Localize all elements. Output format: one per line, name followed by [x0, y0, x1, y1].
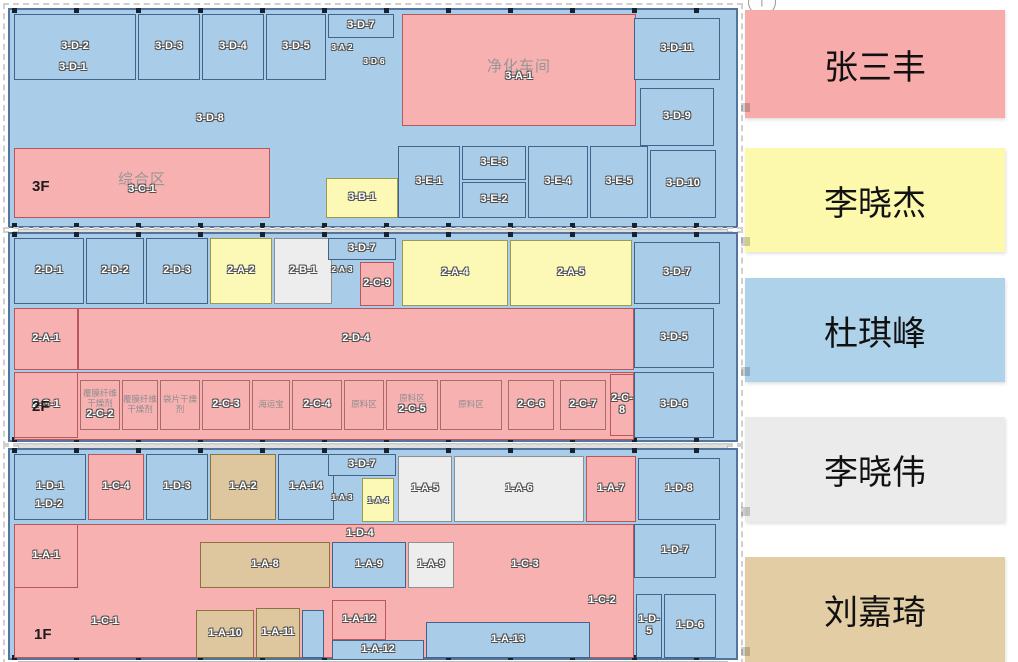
room-3-D-5: 3-D-5 [266, 14, 326, 80]
room-2-C-2: 覆膜纤维干燥剂2-C-2 [80, 380, 120, 430]
room-3-B-1: 3-B-1 [326, 178, 398, 218]
legend-name: 张三丰 [824, 40, 926, 89]
room-label: 2-A-3 [331, 265, 352, 274]
room-label: 1-A-2 [229, 481, 257, 493]
room-label: 2-D-1 [35, 265, 63, 277]
room-3-D-1: 3-D-1 [28, 60, 118, 76]
room-label: 3-D-6 [660, 399, 688, 411]
room-1-A-9: 1-A-9 [408, 542, 454, 588]
room-annotation: 原料区 [351, 400, 377, 410]
room-label: 3-A-1 [505, 71, 533, 83]
room-label: 2-D-3 [163, 265, 191, 277]
room-1-A-3: 1-A-3 [324, 490, 360, 504]
room-3-D-7: 3-D-7 [634, 242, 720, 304]
room-label: 1-D-6 [676, 620, 704, 632]
floor-label-1F: 1F [34, 626, 52, 643]
room-2-D-1: 2-D-1 [14, 238, 84, 304]
room-label: 2-C-9 [363, 278, 391, 290]
legend-item: 李晓杰 [745, 148, 1005, 252]
room-1-C-1: 1-C-1 [50, 612, 160, 632]
floor-plan-1F: 1-D-11-D-21-C-41-D-31-A-21-A-143-D-71-A-… [8, 448, 738, 660]
room-3-E-5: 3-E-5 [590, 146, 648, 218]
room-area [302, 610, 324, 658]
floor-label-2F: 2F [32, 398, 50, 415]
room-1-A-13: 1-A-13 [426, 622, 590, 658]
room-label: 1-A-13 [491, 634, 525, 646]
room-label: 1-A-9 [355, 559, 383, 571]
room-label: 2-A-5 [557, 267, 585, 279]
room-label: 3-D-7 [348, 243, 376, 255]
room-label: 1-D-5 [637, 614, 661, 637]
room-label: 3-D-5 [282, 41, 310, 53]
room-label: 3-D-10 [666, 178, 700, 190]
room-label: 1-D-3 [163, 481, 191, 493]
room-3-C-1: 综合区3-C-1 [14, 148, 270, 218]
room-label: 3-E-5 [606, 176, 633, 188]
room-1-A-2: 1-A-2 [210, 454, 276, 520]
room-1-C-4: 1-C-4 [88, 454, 144, 520]
room-annotation: 覆膜纤维干燥剂 [81, 389, 119, 409]
legend-item: 李晓伟 [745, 417, 1005, 522]
owner-legend: ↑ 张三丰李晓杰杜琪峰李晓伟刘嘉琦 [745, 0, 1008, 662]
room-label: 3-D-7 [663, 267, 691, 279]
room-3-E-3: 3-E-3 [462, 146, 526, 180]
room-label: 3-E-1 [416, 176, 443, 188]
room-1-A-6: 1-A-6 [454, 456, 584, 522]
room-2-C-9: 2-C-9 [360, 262, 394, 306]
room-label: 2-A-2 [227, 265, 255, 277]
room-3-E-1: 3-E-1 [398, 146, 460, 218]
floor-plan-2F: 2-D-12-D-22-D-32-A-22-B-13-D-72-A-32-C-9… [8, 232, 738, 442]
room-label: 1-A-14 [289, 481, 323, 493]
room-3-D-8: 3-D-8 [150, 110, 270, 128]
room-label: 1-A-7 [597, 483, 625, 495]
legend-name: 刘嘉琦 [824, 585, 926, 634]
room-label: 1-A-9 [417, 559, 445, 571]
room-2-C-5: 原料区2-C-5 [386, 380, 438, 430]
room-1-A-7: 1-A-7 [586, 456, 636, 522]
room-3-D-4: 3-D-4 [202, 14, 264, 80]
room-area: 覆膜纤维干燥剂 [122, 380, 158, 430]
room-label: 1-D-4 [346, 528, 374, 540]
room-label: 3-B-1 [348, 192, 376, 204]
room-1-A-12: 1-A-12 [332, 600, 386, 640]
room-label: 1-A-12 [342, 614, 376, 626]
room-area: 袋片干燥剂 [160, 380, 200, 430]
room-3-A-1: 净化车间3-A-1 [402, 14, 636, 126]
room-1-D-2: 1-D-2 [18, 496, 80, 514]
room-2-C-4: 2-C-4 [292, 380, 342, 430]
room-label: 2-D-2 [101, 265, 129, 277]
room-2-C-7: 2-C-7 [560, 380, 606, 430]
room-2-C-6: 2-C-6 [508, 380, 554, 430]
room-3-E-2: 3-E-2 [462, 182, 526, 218]
room-area: 海运宝 [252, 380, 290, 430]
column-row-decoration [12, 448, 734, 453]
room-label: 2-C-3 [212, 399, 240, 411]
room-label: 3-E-4 [545, 176, 572, 188]
legend-item: 杜琪峰 [745, 278, 1005, 382]
room-label: 2-C-7 [569, 399, 597, 411]
room-3-D-6: 3-D-6 [634, 372, 714, 438]
room-label: 1-A-4 [367, 496, 388, 505]
room-1-A-1: 1-A-1 [14, 524, 78, 588]
room-label: 2-B-1 [289, 265, 317, 277]
legend-item: 张三丰 [745, 10, 1005, 118]
room-2-A-2: 2-A-2 [210, 238, 272, 304]
room-1-D-8: 1-D-8 [638, 458, 720, 520]
room-label: 3-D-1 [59, 62, 87, 74]
room-2-D-3: 2-D-3 [146, 238, 208, 304]
room-label: 2-C-4 [303, 399, 331, 411]
room-label: 3-D-3 [155, 41, 183, 53]
room-1-D-4: 1-D-4 [310, 526, 410, 542]
floor-label-3F: 3F [32, 178, 50, 195]
room-label: 3-D-6 [363, 57, 384, 66]
room-3-D-6: 3-D-6 [354, 52, 394, 70]
room-label: 3-D-5 [660, 332, 688, 344]
room-1-A-11: 1-A-11 [256, 608, 300, 658]
room-area: 原料区 [344, 380, 384, 430]
room-1-A-8: 1-A-8 [200, 542, 330, 588]
room-2-A-3: 2-A-3 [324, 262, 360, 276]
room-label: 3-D-4 [219, 41, 247, 53]
room-label: 2-C-6 [517, 399, 545, 411]
room-label: 3-D-7 [347, 20, 375, 32]
room-3-D-9: 3-D-9 [640, 88, 714, 146]
room-label: 1-D-7 [661, 545, 689, 557]
room-label: 2-D-4 [342, 333, 370, 345]
legend-item: 刘嘉琦 [745, 557, 1005, 662]
room-label: 1-A-12 [361, 644, 395, 656]
floor-plan-3F: 净化车间3-A-1综合区3-C-13-D-23-D-13-D-33-D-43-D… [8, 8, 738, 228]
floor-plan-canvas: 净化车间3-A-1综合区3-C-13-D-23-D-13-D-33-D-43-D… [0, 0, 1018, 662]
room-label: 2-A-4 [441, 267, 469, 279]
room-label: 1-D-8 [665, 483, 693, 495]
room-1-A-10: 1-A-10 [196, 610, 254, 658]
room-label: 2-C-5 [398, 404, 426, 416]
room-1-C-2: 1-C-2 [572, 592, 632, 610]
room-1-A-5: 1-A-5 [398, 456, 452, 522]
room-label: 2-C-8 [611, 393, 633, 416]
legend-name: 李晓杰 [824, 176, 926, 225]
room-2-A-1: 2-A-1 [14, 308, 78, 370]
room-2-C-3: 2-C-3 [202, 380, 250, 430]
room-1-A-4: 1-A-4 [362, 478, 394, 522]
room-2-A-4: 2-A-4 [402, 240, 508, 306]
room-2-C-8: 2-C-8 [610, 374, 634, 436]
room-label: 1-A-10 [208, 628, 242, 640]
room-label: 3-C-1 [128, 184, 156, 196]
room-label: 2-A-1 [32, 333, 60, 345]
room-label: 3-D-8 [196, 113, 224, 125]
room-label: 1-D-1 [36, 481, 64, 493]
room-label: 1-D-2 [35, 499, 63, 511]
room-annotation: 海运宝 [258, 400, 284, 410]
room-2-A-5: 2-A-5 [510, 240, 632, 306]
room-1-D-6: 1-D-6 [664, 594, 716, 658]
room-3-D-7: 3-D-7 [328, 238, 396, 260]
room-annotation: 袋片干燥剂 [161, 395, 199, 415]
room-1-D-5: 1-D-5 [636, 594, 662, 658]
room-3-D-7: 3-D-7 [328, 454, 396, 476]
room-label: 1-A-6 [505, 483, 533, 495]
room-3-E-4: 3-E-4 [528, 146, 588, 218]
room-label: 2-C-2 [86, 409, 114, 421]
room-label: 3-A-2 [331, 43, 352, 52]
room-label: 3-D-2 [61, 41, 89, 53]
room-label: 1-C-2 [588, 595, 616, 607]
room-3-D-7: 3-D-7 [328, 14, 394, 38]
room-1-D-7: 1-D-7 [634, 524, 716, 578]
room-label: 1-A-1 [32, 550, 60, 562]
legend-name: 李晓伟 [824, 445, 926, 494]
room-3-D-3: 3-D-3 [138, 14, 200, 80]
room-3-D-10: 3-D-10 [650, 150, 716, 218]
room-label: 1-A-3 [331, 493, 352, 502]
legend-name: 杜琪峰 [824, 306, 926, 355]
room-1-C-3: 1-C-3 [470, 550, 580, 580]
room-2-D-4: 2-D-4 [78, 308, 634, 370]
room-1-D-3: 1-D-3 [146, 454, 208, 520]
column-row-decoration [12, 223, 734, 228]
column-row-decoration [12, 232, 734, 237]
room-label: 1-C-1 [91, 616, 119, 628]
room-label: 3-D-9 [663, 111, 691, 123]
column-row-decoration [12, 8, 734, 13]
room-label: 3-E-2 [481, 194, 508, 206]
room-3-D-11: 3-D-11 [634, 18, 720, 80]
room-label: 1-A-8 [251, 559, 279, 571]
room-label: 3-D-11 [660, 43, 693, 55]
room-1-A-9: 1-A-9 [332, 542, 406, 588]
room-area: 原料区 [440, 380, 502, 430]
room-2-D-2: 2-D-2 [86, 238, 144, 304]
room-1-A-14: 1-A-14 [278, 454, 334, 520]
room-3-D-5: 3-D-5 [634, 308, 714, 368]
room-label: 3-D-7 [348, 459, 376, 471]
room-label: 1-C-3 [511, 559, 539, 571]
room-label: 1-A-11 [261, 627, 294, 639]
room-annotation: 原料区 [458, 400, 484, 410]
room-1-A-12: 1-A-12 [332, 640, 424, 660]
room-label: 1-A-5 [411, 483, 439, 495]
room-annotation: 覆膜纤维干燥剂 [123, 395, 157, 415]
room-label: 3-E-3 [481, 157, 508, 169]
room-label: 1-C-4 [102, 481, 130, 493]
